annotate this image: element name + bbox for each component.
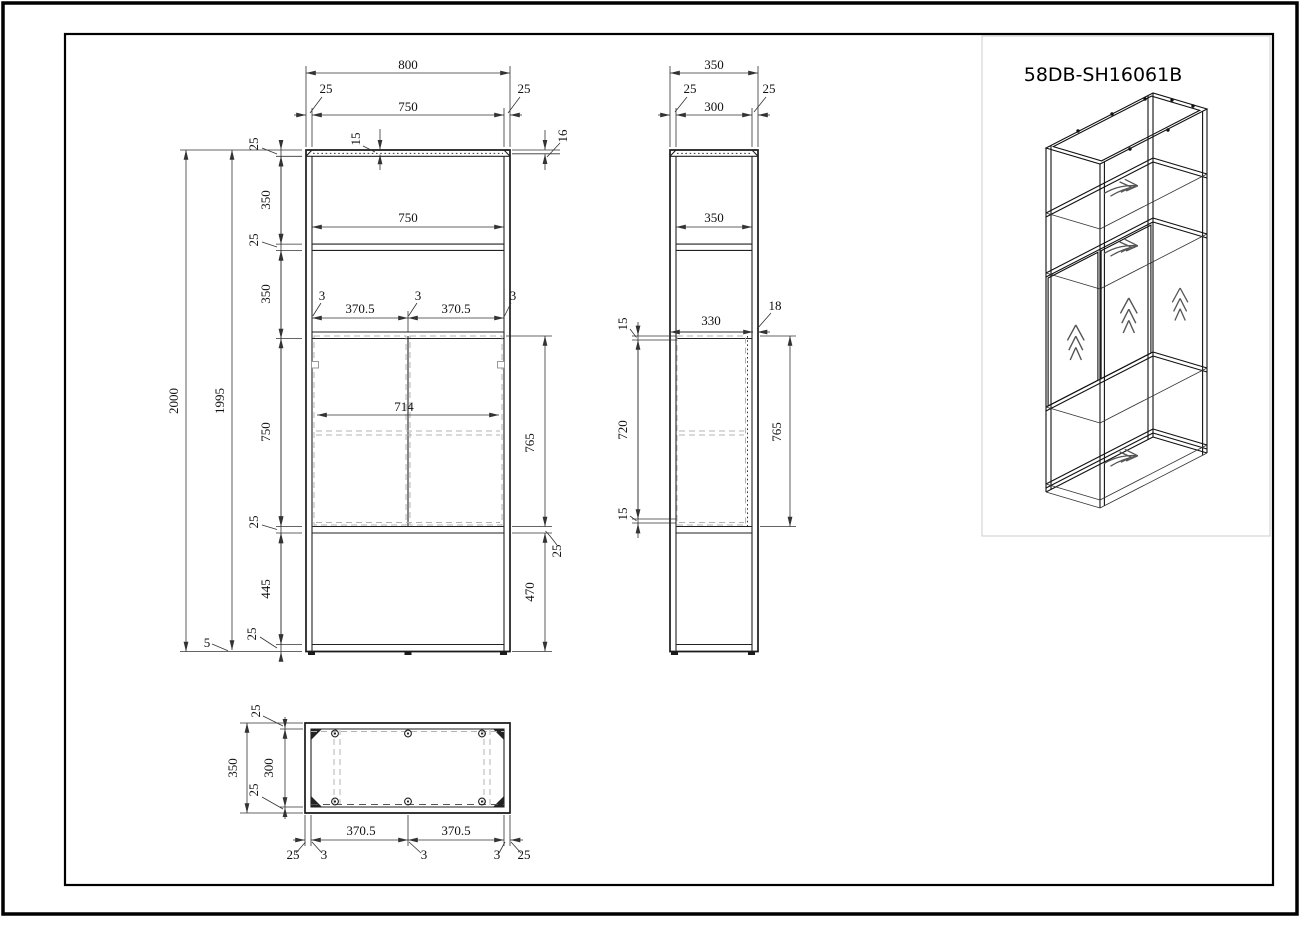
dim-front-frame-height: 1995 xyxy=(212,388,227,414)
top-view: 25 350 300 25 370.5 370.5 25 3 3 3 25 xyxy=(225,705,531,863)
top-dimensions: 25 350 300 25 370.5 370.5 25 3 3 3 25 xyxy=(225,705,531,863)
dim-top-frame-bottom: 25 xyxy=(246,784,261,797)
dim-front-top-rail: 16 xyxy=(555,129,570,143)
dim-front-seg-opening1: 350 xyxy=(258,190,273,210)
dim-top-gap-right: 3 xyxy=(494,847,501,862)
dim-front-door-width-left: 370.5 xyxy=(345,301,374,316)
dim-front-inner-width-top: 750 xyxy=(398,99,418,114)
dim-top-frame-top: 25 xyxy=(248,705,263,718)
dim-top-edge-right: 25 xyxy=(518,847,531,862)
dim-side-frame-front: 25 xyxy=(684,81,697,96)
iso-top-frame xyxy=(1046,93,1207,164)
iso-back-rails xyxy=(1046,174,1207,508)
side-dimensions: 350 25 300 25 350 330 18 15 720 15 765 xyxy=(615,57,796,538)
dim-side-door-span: 720 xyxy=(615,420,630,440)
dim-front-bottom-opening: 470 xyxy=(522,582,537,602)
dim-top-edge-left: 25 xyxy=(287,847,300,862)
dim-top-gap-mid: 3 xyxy=(421,847,428,862)
dim-side-inner-depth: 300 xyxy=(704,99,724,114)
technical-drawing: 800 25 750 25 15 16 750 2000 1995 25 350… xyxy=(0,0,1300,920)
dim-side-frame-back: 25 xyxy=(763,81,776,96)
iso-side-rails xyxy=(1153,158,1207,453)
dim-front-panel-inset: 15 xyxy=(348,133,363,146)
dim-front-inner-width: 750 xyxy=(398,210,418,225)
dim-side-door-depth: 330 xyxy=(701,313,721,328)
dim-front-overall-height: 2000 xyxy=(166,388,181,414)
dim-front-doors-inner-width: 714 xyxy=(394,399,414,414)
dim-front-frame-left: 25 xyxy=(320,81,333,96)
dim-front-door-gap-mid: 3 xyxy=(415,288,422,303)
dim-front-door-height: 765 xyxy=(522,433,537,453)
isometric-view: 58DB-SH16061B xyxy=(1024,64,1207,508)
iso-panel-frame xyxy=(982,36,1270,536)
dim-front-door-width-right: 370.5 xyxy=(441,301,470,316)
model-number: 58DB-SH16061B xyxy=(1024,64,1183,86)
side-leader-lines xyxy=(630,97,771,521)
side-structure xyxy=(670,150,758,652)
drawing-sheet: 800 25 750 25 15 16 750 2000 1995 25 350… xyxy=(0,0,1300,920)
dim-top-overall-depth: 350 xyxy=(225,758,240,778)
dim-front-door-gap-left: 3 xyxy=(319,288,326,303)
front-leader-lines xyxy=(212,97,560,651)
dim-front-door-gap-right: 3 xyxy=(510,288,517,303)
hinge-right xyxy=(498,362,505,369)
dim-side-door-thickness: 18 xyxy=(769,298,782,313)
dim-top-door-width-left: 370.5 xyxy=(346,823,375,838)
dim-front-overall-width: 800 xyxy=(398,57,418,72)
dim-front-seg-shelf1: 25 xyxy=(246,234,261,247)
dim-front-seg-doors: 750 xyxy=(258,422,273,442)
front-view: 800 25 750 25 15 16 750 2000 1995 25 350… xyxy=(166,57,570,659)
dim-front-seg-bottom-frame: 25 xyxy=(244,628,259,641)
dim-front-seg-top-frame: 25 xyxy=(246,138,261,151)
dim-side-clearance-bottom: 15 xyxy=(615,508,630,521)
dim-front-frame-right: 25 xyxy=(518,81,531,96)
dim-side-inner-depth-mid: 350 xyxy=(704,210,724,225)
dim-side-clearance-top: 15 xyxy=(615,318,630,331)
dim-side-door-height: 765 xyxy=(769,422,784,442)
top-hidden-lines xyxy=(311,729,504,807)
dim-front-seg-shelf2: 25 xyxy=(246,516,261,529)
dim-front-seg-opening2: 350 xyxy=(258,284,273,304)
hinge-left xyxy=(312,362,319,369)
side-door-hidden-lines xyxy=(677,336,746,525)
dim-top-door-width-right: 370.5 xyxy=(441,823,470,838)
dim-front-shelf-thickness: 25 xyxy=(549,545,564,558)
dim-top-gap-left: 3 xyxy=(321,847,328,862)
dim-side-overall-depth: 350 xyxy=(704,57,724,72)
dim-front-foot-height: 5 xyxy=(204,635,211,650)
dim-top-inner-depth: 300 xyxy=(261,758,276,778)
dim-front-seg-opening3: 445 xyxy=(258,579,273,599)
iso-wood-grain-marks xyxy=(1067,179,1188,466)
top-screw-holes xyxy=(332,730,486,805)
side-view: 350 25 300 25 350 330 18 15 720 15 765 xyxy=(615,57,796,655)
side-outline xyxy=(670,150,758,652)
